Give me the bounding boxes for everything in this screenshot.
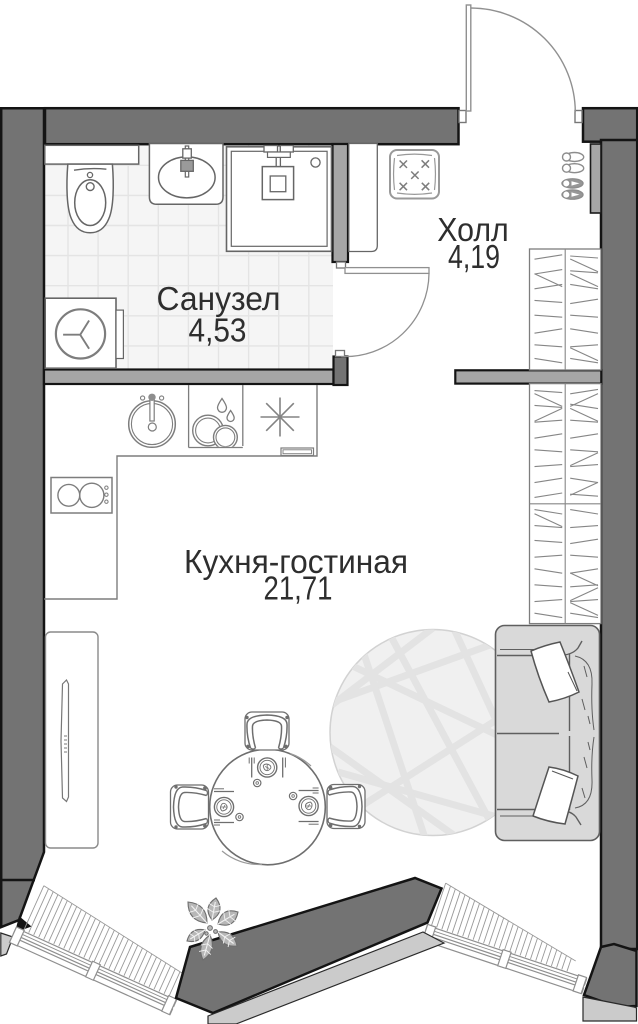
svg-text:4,53: 4,53 — [189, 312, 247, 349]
svg-text:4,19: 4,19 — [448, 238, 500, 275]
svg-text:21,71: 21,71 — [264, 570, 333, 607]
